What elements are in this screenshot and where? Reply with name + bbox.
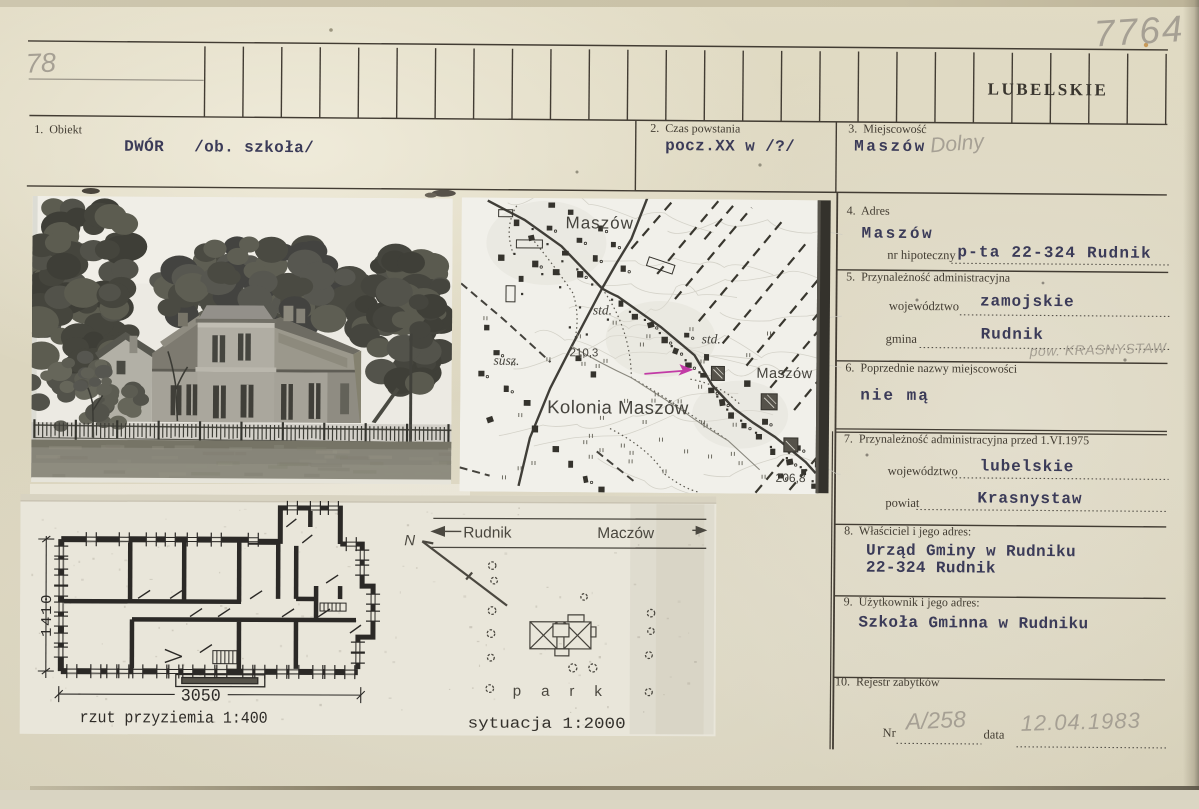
svg-text:rzut przyziemia 1:400: rzut przyziemia 1:400: [80, 708, 268, 728]
svg-text:206,8: 206,8: [776, 470, 806, 484]
svg-text:Maszów: Maszów: [756, 365, 812, 381]
svg-text:Kolonia Maszów: Kolonia Maszów: [547, 396, 689, 418]
svg-text:Maszów: Maszów: [566, 213, 635, 233]
svg-text:park: park: [513, 683, 622, 700]
svg-text:std.: std.: [593, 302, 612, 317]
svg-text:Rudnik: Rudnik: [463, 524, 512, 541]
svg-text:Maczów: Maczów: [597, 525, 655, 542]
svg-text:3050: 3050: [181, 686, 221, 706]
svg-text:susz.: susz.: [493, 352, 519, 367]
svg-text:1410: 1410: [39, 593, 56, 637]
svg-text:std.: std.: [702, 331, 721, 346]
svg-text:N: N: [404, 532, 415, 549]
svg-text:sytuacja 1:2000: sytuacja 1:2000: [468, 715, 626, 734]
svg-text:210,3: 210,3: [570, 347, 599, 359]
